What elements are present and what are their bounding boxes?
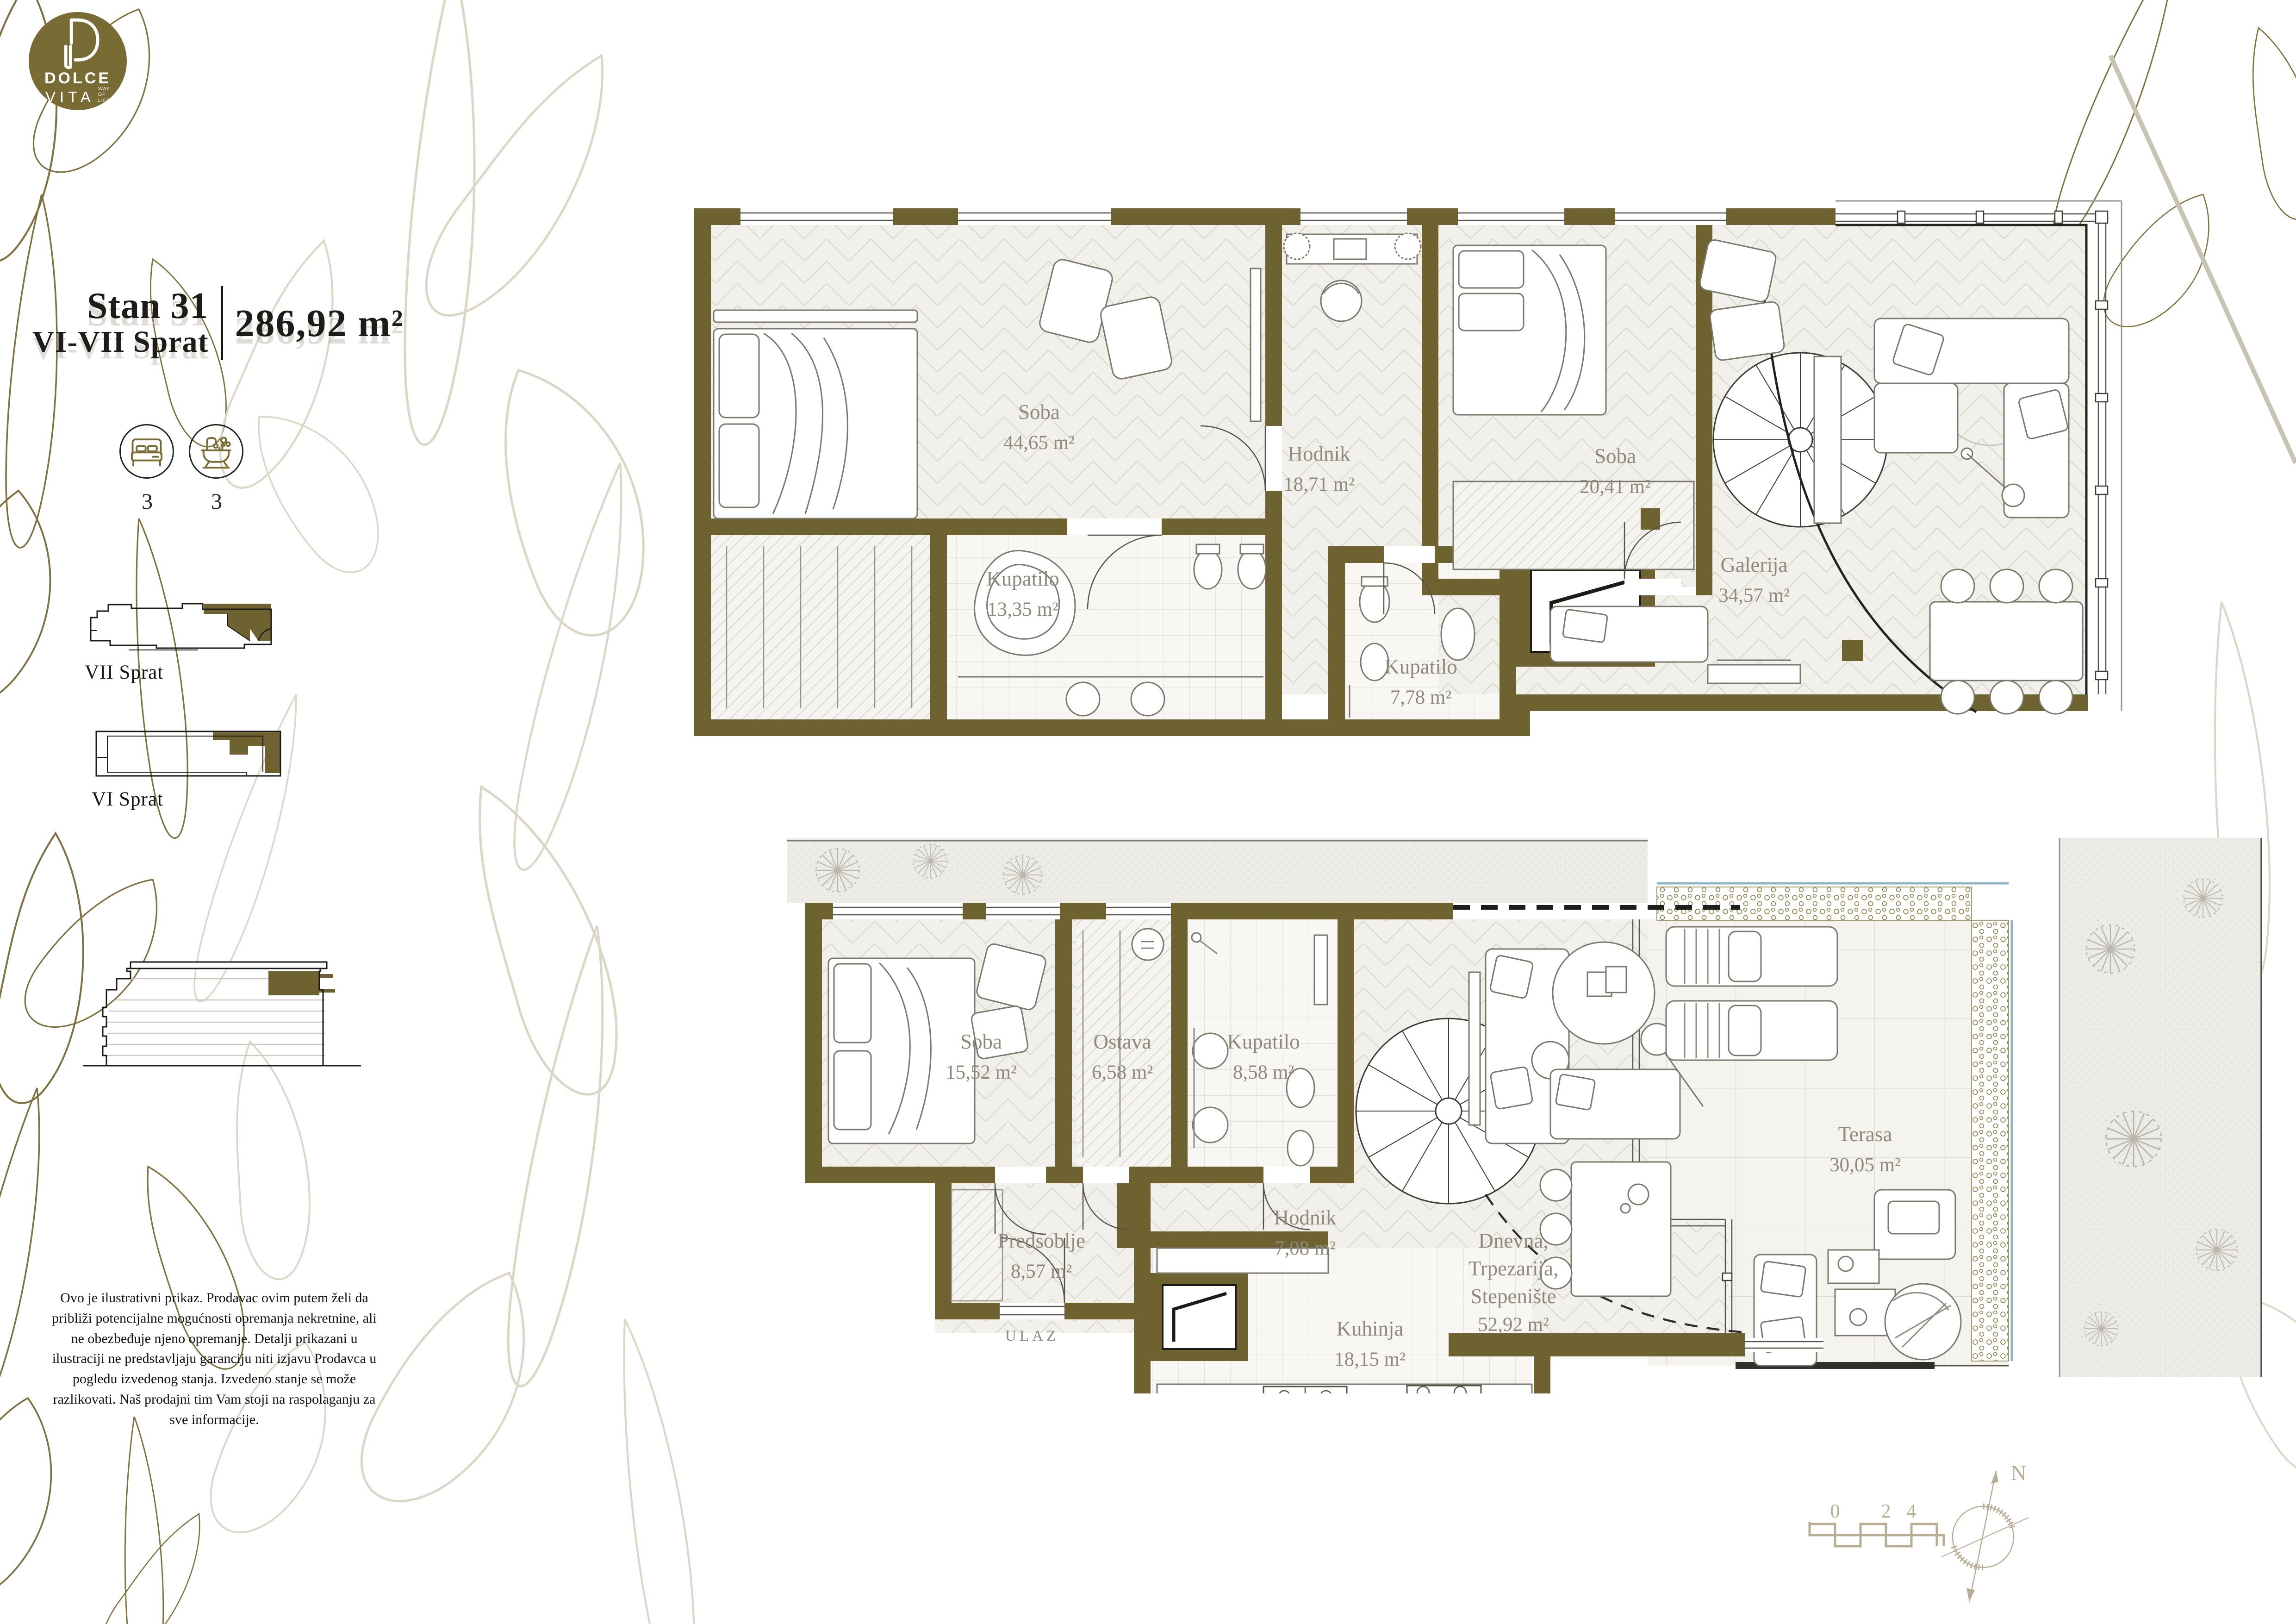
room-label: Terasa <box>1838 1123 1892 1146</box>
room-label: Kupatilo <box>1384 655 1457 678</box>
room-label: Soba <box>1594 444 1636 468</box>
room-area: 34,57 m² <box>1718 585 1790 606</box>
floor-closet <box>711 535 930 719</box>
room-label: Kupatilo <box>986 567 1059 590</box>
tagline-life: LIFE <box>98 98 110 103</box>
room-label: Predsoblje <box>997 1229 1085 1252</box>
room-label: Hodnik <box>1274 1206 1337 1229</box>
roof-band-top <box>787 838 1648 903</box>
floor6-diagram <box>89 726 297 791</box>
floor7-label: VII Sprat <box>85 661 163 684</box>
room-area: 20,41 m² <box>1580 476 1651 498</box>
lower-floor-plan: Soba 15,52 m² Ostava 6,58 m² Kupatilo 8,… <box>764 810 2272 1393</box>
room-area: 8,58 m² <box>1233 1062 1294 1083</box>
floor7-diagram <box>82 598 291 663</box>
room-label: Trpezarija, <box>1468 1257 1559 1280</box>
elevator-lower <box>1163 1285 1236 1349</box>
brand-tagline: WAY OF LIFE <box>98 86 110 104</box>
title-divider <box>221 286 223 360</box>
windows-lower <box>833 903 1171 919</box>
bedrooms-stat: 3 <box>119 424 175 514</box>
title-block: Stan 31 VI-VII Sprat 286,92 m² <box>32 286 404 360</box>
roof-band-right <box>2060 838 2261 1377</box>
room-area: 52,92 m² <box>1478 1314 1549 1336</box>
scale-tick-0: 0 <box>1830 1505 1840 1522</box>
bathrooms-stat: 3 <box>189 424 244 514</box>
room-area: 6,58 m² <box>1092 1062 1153 1083</box>
room-label: Kupatilo <box>1227 1030 1300 1053</box>
room-label: Dnevna, <box>1478 1229 1548 1252</box>
room-label: Kuhinja <box>1337 1317 1404 1340</box>
room-area: 18,71 m² <box>1283 474 1355 495</box>
bath-icon <box>196 431 236 471</box>
bedrooms-count: 3 <box>119 489 175 514</box>
room-label: Ostava <box>1094 1030 1151 1053</box>
room-area: 7,08 m² <box>1275 1237 1336 1259</box>
room-label: Hodnik <box>1288 442 1351 465</box>
tagline-way: WAY <box>98 86 110 92</box>
room-area: 13,35 m² <box>987 599 1058 620</box>
room-area: 8,57 m² <box>1011 1261 1072 1282</box>
brochure-page: DOLCE VITA WAY OF LIFE Stan 31 VI-VII Sp… <box>0 0 2296 1624</box>
scale-tick-4: 4 <box>1907 1505 1916 1522</box>
building-elevation <box>79 949 366 1079</box>
unit-title: Stan 31 <box>32 287 209 325</box>
upper-floor-plan: Soba 44,65 m² Kupatilo 13,35 m² Hodnik 1… <box>671 194 2180 759</box>
disclaimer-text: Ovo je ilustrativni prikaz. Prodavac ovi… <box>50 1288 379 1430</box>
area-title: 286,92 m² <box>235 301 404 346</box>
room-area: 7,78 m² <box>1390 687 1451 708</box>
room-area: 18,15 m² <box>1334 1349 1406 1370</box>
north-label: N <box>2011 1461 2026 1485</box>
bath-icon-circle <box>189 424 243 479</box>
room-area: 15,52 m² <box>946 1062 1017 1083</box>
bed-icon <box>127 431 167 471</box>
room-label: Soba <box>1018 400 1060 424</box>
compass-rose: N <box>1923 1451 2053 1609</box>
brand-monogram-icon <box>54 18 102 69</box>
entrance-label: ULAZ <box>1005 1328 1059 1344</box>
room-label: Stepenište <box>1471 1285 1556 1308</box>
bed-icon-circle <box>119 424 174 479</box>
room-label: Galerija <box>1721 553 1788 576</box>
room-area: 44,65 m² <box>1003 432 1075 454</box>
brand-logo: DOLCE VITA WAY OF LIFE <box>29 12 127 110</box>
floor6-label: VI Sprat <box>92 788 163 811</box>
spiral-stair-upper <box>1713 353 1887 527</box>
room-area: 30,05 m² <box>1829 1154 1901 1176</box>
scale-tick-2: 2 <box>1881 1505 1891 1522</box>
floor-title: VI-VII Sprat <box>32 325 209 359</box>
tagline-of: OF <box>98 92 110 97</box>
brand-name: DOLCE <box>44 70 111 86</box>
room-label: Soba <box>960 1030 1002 1053</box>
brand-name-2: VITA <box>45 89 95 105</box>
bathrooms-count: 3 <box>189 489 244 514</box>
